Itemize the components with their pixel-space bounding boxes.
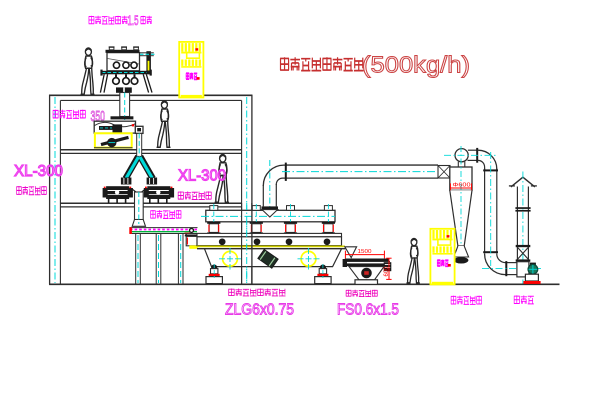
svg-text:ZLG6x0.75: ZLG6x0.75 [225,302,294,319]
svg-text:XL-300: XL-300 [178,168,226,185]
svg-text:600: 600 [384,266,390,277]
svg-text:(500kg/h): (500kg/h) [362,52,470,78]
svg-text:1.5: 1.5 [128,12,139,28]
svg-text:XL-300: XL-300 [14,163,63,180]
svg-text:Φ600: Φ600 [453,183,471,189]
svg-text:1500: 1500 [358,249,372,255]
svg-text:FS0.6x1.5: FS0.6x1.5 [337,302,399,319]
